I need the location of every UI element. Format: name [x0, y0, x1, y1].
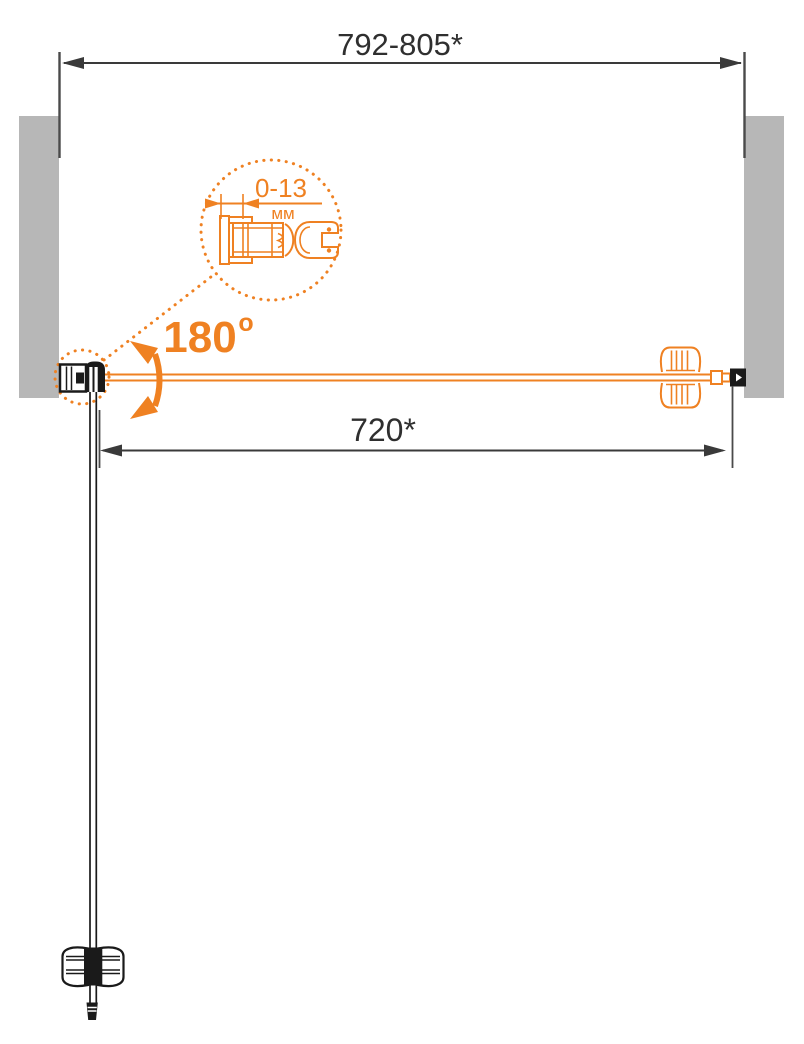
handle-center-grip [84, 948, 102, 986]
arrowhead-left-icon [62, 57, 84, 69]
arrowhead-left-icon [100, 445, 122, 457]
profile-wall-bar [220, 216, 229, 264]
adjustment-arrow-left-icon [205, 199, 221, 209]
swing-angle-degree-mark: o [238, 309, 253, 337]
adjustment-unit-label: мм [271, 204, 294, 223]
arrowhead-right-icon [704, 445, 726, 457]
glass-end-connector [711, 371, 722, 384]
shower-door-plan-drawing: 792-805* 0-13 мм 180 o [0, 0, 804, 1044]
door-open-position [90, 392, 96, 1003]
swing-angle-label: 180 [163, 313, 236, 362]
overall-width-label: 792-805* [337, 27, 463, 62]
door-bottom-cap [87, 1003, 98, 1021]
knob-bottom-half [661, 383, 700, 408]
door-handle-open [63, 947, 124, 986]
adjustment-range-label: 0-13 [255, 173, 307, 203]
technical-drawing-page: 792-805* 0-13 мм 180 o [0, 0, 804, 1044]
door-handle-closed [661, 348, 700, 408]
profile-clamp-block [76, 373, 84, 384]
wall-section-left [19, 116, 59, 398]
door-closed-position [104, 371, 730, 384]
arrowhead-right-icon [720, 57, 742, 69]
door-width-label: 720* [350, 412, 416, 448]
swing-arrowhead-bottom-icon [130, 396, 158, 419]
profile-gasket-curve [285, 224, 293, 256]
wall-section-right [744, 116, 784, 398]
swing-arrowhead-top-icon [130, 341, 158, 364]
wall-profile-cross-section-detail [220, 216, 338, 264]
adjustment-arrow-right-icon [243, 199, 259, 209]
dimension-overall-width: 792-805* [60, 27, 745, 158]
glass-end-tip [722, 374, 730, 382]
knob-top-half [661, 348, 700, 373]
hinge-assembly [60, 362, 105, 393]
swing-angle-annotation: 180 o [130, 309, 254, 419]
dimension-door-width: 720* [100, 386, 733, 468]
hinge-profile-c-section [295, 222, 338, 258]
wall-bracket-right [730, 369, 746, 387]
profile-seal-squiggle [278, 234, 283, 248]
